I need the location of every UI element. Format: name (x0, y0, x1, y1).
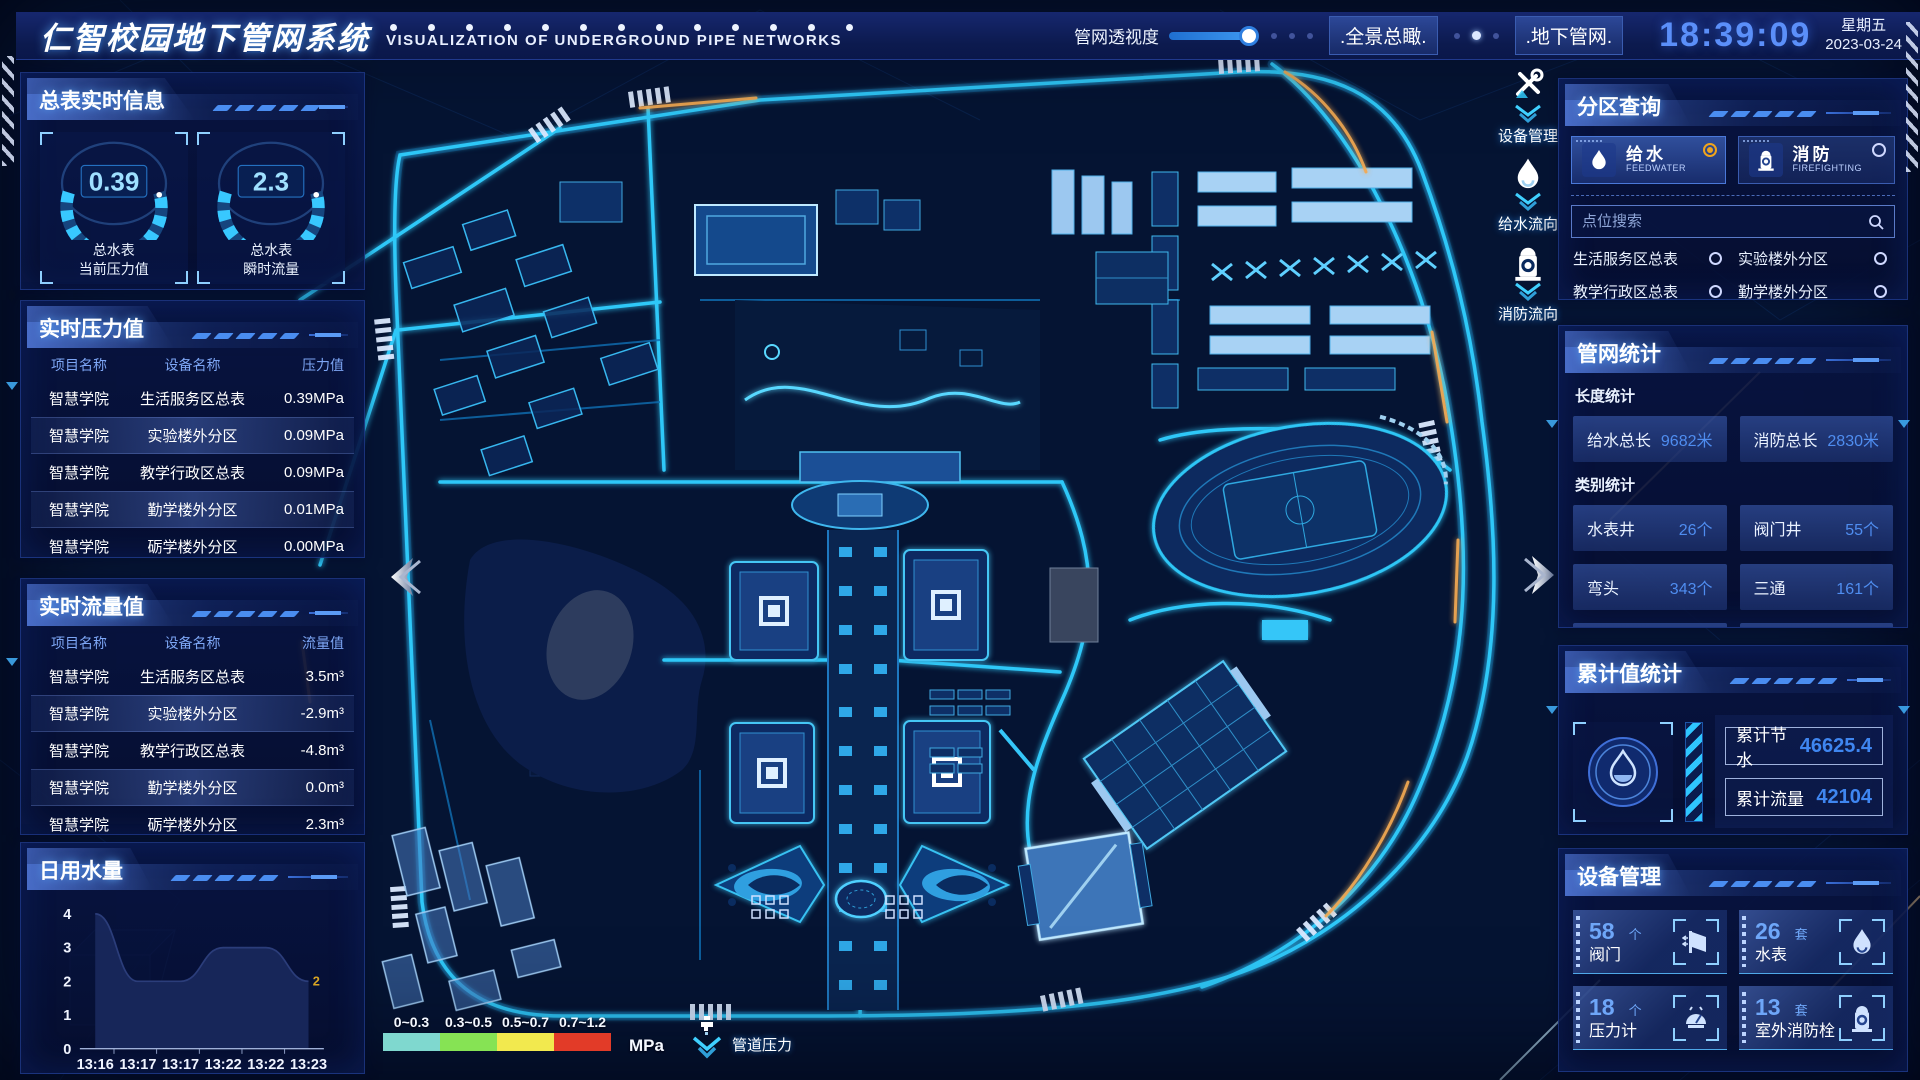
section-header: 管网统计 (1565, 331, 1901, 373)
section-header: 实时流量值 (27, 584, 358, 626)
y-tick-1: 1 (63, 1008, 71, 1024)
table-row[interactable]: 智慧学院勤学楼外分区0.01MPa (31, 491, 354, 528)
point-item[interactable]: 教学行政区总表 (1573, 275, 1728, 300)
header-line (309, 612, 348, 614)
legend-labels: 0~0.3 0.3~0.5 0.5~0.7 0.7~1.2 (383, 1014, 611, 1030)
hydrant-icon (1749, 143, 1783, 177)
hazard-stripe-right (1906, 22, 1918, 172)
cumulative-item: 累计节水 46625.4 (1725, 727, 1883, 765)
slash-decoration (194, 333, 297, 339)
x-tick-5: 13:23 (290, 1057, 327, 1073)
section-title: 设备管理 (1565, 854, 1691, 896)
faucet-icon (695, 1014, 719, 1036)
legend-color-bar (383, 1033, 611, 1051)
map-stadium-entrance (1262, 620, 1308, 640)
gauge-dial: 2.3 (203, 136, 339, 240)
point-item[interactable]: 勤学楼外分区 (1738, 275, 1893, 300)
header-line (309, 334, 348, 336)
marker-label: 给水流向 (1498, 213, 1558, 234)
table-header-row: 项目名称 设备名称 压力值 (31, 350, 354, 380)
gauge-flow-card: 2.3 总水表 瞬时流量 (197, 132, 345, 284)
radio-unselected-icon[interactable] (1709, 252, 1722, 265)
legend-swatch-0 (383, 1033, 440, 1051)
panel-daily-water: 日用水量 01 23 4 13:1613:17 13:1713:22 13:22… (20, 842, 365, 1074)
table-row[interactable]: 智慧学院教学行政区总表0.09MPa (31, 454, 354, 491)
stat-box: 三通 161个 (1740, 564, 1894, 610)
tab-firefighting[interactable]: 消防 FIREFIGHTING (1738, 136, 1896, 184)
tab-feedwater[interactable]: 给水 FEEDWATER (1571, 136, 1726, 184)
panel-edge-arrow (1546, 706, 1558, 714)
tools-icon (1508, 64, 1548, 104)
legend-swatch-2 (497, 1033, 554, 1051)
map-marker-column: 设备管理 给水流向 消防流向 (1490, 64, 1566, 334)
tab-label: 给水 (1626, 146, 1686, 165)
stripe-divider (1685, 722, 1703, 822)
section-title: 实时流量值 (27, 584, 174, 626)
legend-caption: 管道压力 (732, 1034, 792, 1055)
chart-end-label: 2 (313, 974, 320, 989)
marker-fire-flow[interactable]: 消防流向 (1498, 244, 1558, 324)
slash-decoration (1711, 111, 1814, 117)
gauge-value: 2.3 (253, 166, 289, 196)
panel-edge-arrow (1898, 706, 1910, 714)
pressure-table: 项目名称 设备名称 压力值 智慧学院生活服务区总表0.39MPa 智慧学院实验楼… (31, 350, 354, 558)
water-drop-icon (1512, 156, 1544, 192)
valve-icon (1673, 919, 1719, 965)
radio-unselected-icon[interactable] (1709, 285, 1722, 298)
tab-label: 消防 (1793, 146, 1863, 165)
slash-decoration (173, 875, 276, 881)
y-tick-0: 0 (63, 1042, 71, 1058)
panel-realtime-flow: 实时流量值 项目名称 设备名称 流量值 智慧学院生活服务区总表3.5m³ 智慧学… (20, 578, 365, 835)
gauge-caption: 总水表 瞬时流量 (203, 241, 339, 279)
x-tick-1: 13:17 (119, 1057, 156, 1073)
header-line (1826, 112, 1891, 114)
device-card-water-meter[interactable]: 26套 水表 (1739, 910, 1893, 974)
panel-pipe-stats: 管网统计 长度统计 给水总长 9682米 消防总长 2830米 类别统计 水表井… (1558, 325, 1908, 628)
tab-sublabel: FEEDWATER (1626, 164, 1686, 174)
pan-left-arrow[interactable] (383, 552, 423, 602)
point-item[interactable]: 实验楼外分区 (1738, 242, 1893, 275)
radio-unselected-icon[interactable] (1872, 143, 1886, 157)
section-header: 设备管理 (1565, 854, 1901, 896)
panel-realtime-pressure: 实时压力值 项目名称 设备名称 压力值 智慧学院生活服务区总表0.39MPa 智… (20, 300, 365, 558)
section-title: 分区查询 (1565, 84, 1691, 126)
table-row[interactable]: 智慧学院实验楼外分区0.09MPa (31, 417, 354, 454)
table-row[interactable]: 智慧学院砺学楼外分区0.00MPa (31, 528, 354, 558)
cumulative-values: 累计节水 46625.4 累计流量 42104 (1715, 715, 1893, 828)
search-icon[interactable] (1868, 214, 1884, 230)
hazard-stripe-left (2, 56, 14, 166)
marker-label: 设备管理 (1498, 125, 1558, 146)
header-line (1826, 359, 1891, 361)
pipe-opacity-slider[interactable] (1169, 32, 1255, 40)
section-header: 总表实时信息 (27, 78, 358, 120)
radio-unselected-icon[interactable] (1874, 252, 1887, 265)
section-title: 管网统计 (1565, 331, 1691, 373)
radio-unselected-icon[interactable] (1874, 285, 1887, 298)
tab-sublabel: FIREFIGHTING (1793, 164, 1863, 174)
point-search-box (1571, 205, 1895, 238)
table-row[interactable]: 智慧学院生活服务区总表3.5m³ (31, 658, 354, 695)
map-center-complex (735, 300, 1040, 470)
map-gym-building (1016, 831, 1155, 942)
stat-box: 弯头 343个 (1573, 564, 1727, 610)
legend-swatch-1 (440, 1033, 497, 1051)
panel-edge-arrow (6, 658, 18, 666)
length-stats-label: 长度统计 (1575, 385, 1907, 406)
chevron-down-icon (1513, 192, 1543, 212)
panel-edge-arrow (1546, 420, 1558, 428)
table-row[interactable]: 智慧学院砺学楼外分区2.3m³ (31, 806, 354, 835)
table-row[interactable]: 智慧学院教学行政区总表-4.8m³ (31, 732, 354, 769)
marker-label: 消防流向 (1498, 303, 1558, 324)
map-promenade (828, 530, 898, 1010)
hydrant-icon (1839, 995, 1885, 1041)
dot-separator (1271, 33, 1313, 39)
flow-table: 项目名称 设备名称 流量值 智慧学院生活服务区总表3.5m³ 智慧学院实验楼外分… (31, 628, 354, 835)
stat-box: 阀门井 55个 (1740, 505, 1894, 551)
header-line (288, 876, 348, 878)
chevron-down-icon (1513, 282, 1543, 302)
slash-decoration (1711, 881, 1814, 887)
y-tick-3: 3 (63, 941, 71, 957)
overview-button[interactable]: .全景总瞰. (1329, 16, 1438, 55)
panel-edge-arrow (6, 382, 18, 390)
clock-weekday: 星期五 (1841, 17, 1886, 36)
gauge-pressure-card: 0.39 总水表 当前压力值 (40, 132, 188, 284)
marker-feedwater-flow[interactable]: 给水流向 (1498, 156, 1558, 234)
section-header: 日用水量 (27, 848, 358, 890)
x-tick-2: 13:17 (162, 1057, 199, 1073)
stat-box-clipped (1740, 623, 1894, 628)
pipe-pressure-legend: 0~0.3 0.3~0.5 0.5~0.7 0.7~1.2 MPa (383, 1014, 792, 1060)
category-stats-label: 类别统计 (1575, 474, 1907, 495)
header-line (330, 106, 348, 108)
daily-water-chart: 01 23 4 13:1613:17 13:1713:22 13:2213:23… (21, 890, 358, 1074)
section-header: 实时压力值 (27, 306, 358, 348)
slider-thumb[interactable] (1239, 26, 1259, 46)
dashed-divider (1571, 195, 1895, 196)
search-input[interactable] (1572, 213, 1868, 230)
clock-block: 18:39:09 星期五 2023-03-24 (1659, 16, 1902, 55)
section-title: 日用水量 (27, 848, 153, 890)
panel-meter-info: 总表实时信息 0.39 总水表 当前压力值 (20, 72, 365, 290)
slash-decoration (194, 611, 297, 617)
chevron-down-icon (690, 1036, 724, 1060)
legend-swatch-3 (554, 1033, 611, 1051)
app-title: 仁智校园地下管网系统 (40, 13, 370, 58)
y-tick-2: 2 (63, 974, 71, 990)
slash-decoration (1732, 678, 1835, 684)
section-title: 总表实时信息 (27, 78, 195, 120)
device-card-pressure-gauge[interactable]: 18个 压力计 (1573, 986, 1727, 1050)
table-row[interactable]: 智慧学院勤学楼外分区0.0m³ (31, 769, 354, 806)
x-tick-4: 13:22 (247, 1057, 284, 1073)
water-saving-icon-card (1573, 722, 1673, 822)
cumulative-item: 累计流量 42104 (1725, 778, 1883, 816)
header-line (1847, 679, 1891, 681)
legend-label: 0~0.3 (383, 1014, 440, 1030)
water-drop-icon (1582, 143, 1616, 177)
header-subtitle-block: VISUALIZATION OF UNDERGROUND PIPE NETWOR… (386, 22, 853, 49)
slash-decoration (215, 105, 318, 111)
pressure-gauge-icon (1673, 995, 1719, 1041)
panel-zone-query: 分区查询 给水 FEEDWATER (1558, 78, 1908, 300)
x-tick-0: 13:16 (77, 1057, 114, 1073)
section-header: 累计值统计 (1565, 651, 1901, 693)
header-dots (390, 24, 853, 31)
section-title: 累计值统计 (1565, 651, 1712, 693)
point-list: 生活服务区总表 实验楼外分区 教学行政区总表 勤学楼外分区 砺学楼外分区 宿舍区… (1573, 242, 1893, 300)
chevron-down-icon (1513, 104, 1543, 124)
gauge-value: 0.39 (88, 166, 139, 196)
slash-decoration (1711, 358, 1814, 364)
panel-device-management: 设备管理 58个 阀门 26套 (1558, 848, 1908, 1072)
stat-box-clipped (1573, 623, 1727, 628)
dot-separator (1454, 31, 1499, 40)
y-axis-ticks: 01 23 4 (63, 907, 71, 1058)
clock-date: 2023-03-24 (1825, 36, 1902, 55)
table-row[interactable]: 智慧学院生活服务区总表0.39MPa (31, 380, 354, 417)
hydrant-icon (1511, 244, 1545, 282)
gauge-dial: 0.39 (46, 136, 182, 240)
section-header: 分区查询 (1565, 84, 1901, 126)
device-card-hydrant[interactable]: 13套 室外消防栓 (1739, 986, 1893, 1050)
underground-pipes-button[interactable]: .地下管网. (1515, 16, 1624, 55)
x-tick-3: 13:22 (205, 1057, 242, 1073)
legend-label: 0.7~1.2 (554, 1014, 611, 1030)
panel-cumulative: 累计值统计 累计节水 46625.4 (1558, 645, 1908, 835)
stat-box: 给水总长 9682米 (1573, 416, 1727, 462)
header-line (1826, 882, 1891, 884)
point-item[interactable]: 生活服务区总表 (1573, 242, 1728, 275)
panel-edge-arrow (1898, 420, 1910, 428)
section-title: 实时压力值 (27, 306, 174, 348)
marker-device-management[interactable]: 设备管理 (1498, 64, 1558, 146)
gauge-caption: 总水表 当前压力值 (46, 241, 182, 279)
app-subtitle: VISUALIZATION OF UNDERGROUND PIPE NETWOR… (386, 32, 853, 49)
stat-box: 水表井 26个 (1573, 505, 1727, 551)
clock-time: 18:39:09 (1659, 16, 1811, 55)
legend-unit: MPa (629, 1036, 664, 1056)
radio-selected-icon[interactable] (1703, 143, 1717, 157)
legend-label: 0.3~0.5 (440, 1014, 497, 1030)
legend-label: 0.5~0.7 (497, 1014, 554, 1030)
water-meter-icon (1839, 919, 1885, 965)
table-header-row: 项目名称 设备名称 流量值 (31, 628, 354, 658)
table-row[interactable]: 智慧学院实验楼外分区-2.9m³ (31, 695, 354, 732)
dashboard-screen: 设备管理 给水流向 消防流向 (0, 0, 1920, 1080)
stat-box: 消防总长 2830米 (1740, 416, 1894, 462)
area-path (95, 914, 308, 1049)
x-axis-ticks: 13:1613:17 13:1713:22 13:2213:23 (77, 1057, 327, 1073)
pan-right-arrow[interactable] (1522, 550, 1562, 600)
device-card-valve[interactable]: 58个 阀门 (1573, 910, 1727, 974)
header-bar: 仁智校园地下管网系统 VISUALIZATION OF UNDERGROUND … (16, 12, 1920, 60)
pipe-opacity-label: 管网透视度 (1074, 23, 1159, 48)
y-tick-4: 4 (63, 907, 71, 923)
water-drop-icon (1584, 733, 1662, 811)
